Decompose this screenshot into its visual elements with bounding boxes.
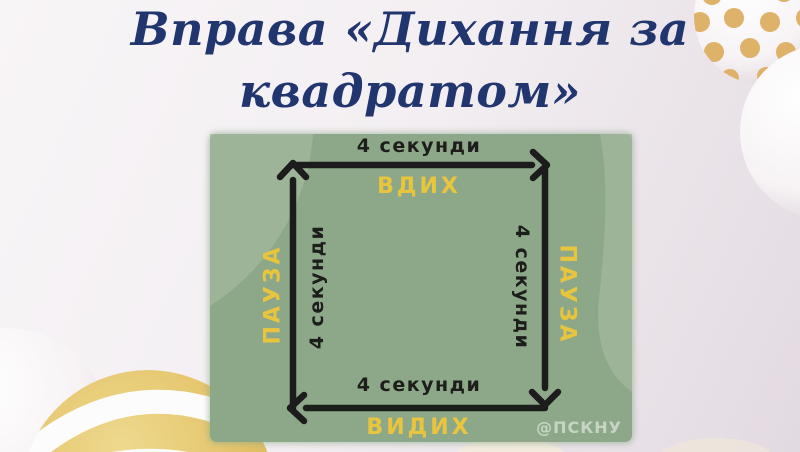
exhale-label: ВИДИХ <box>293 415 545 440</box>
slide: Вправа «Дихання за квадратом» <box>0 0 800 452</box>
watermark: @ПСКНУ <box>536 418 622 437</box>
pause-right-label: ПАУЗА <box>555 220 580 370</box>
pause-left-label: ПАУЗА <box>261 220 286 370</box>
breathing-square-panel: 4 секунди ВДИХ ПАУЗА 4 секунди 4 секунди… <box>210 134 632 442</box>
slide-title-line1: Вправа «Дихання за <box>100 0 720 60</box>
right-duration-label: 4 секунди <box>511 212 533 362</box>
slide-title: Вправа «Дихання за квадратом» <box>100 0 720 122</box>
panel-light-wave-right <box>598 134 632 392</box>
bottom-duration-label: 4 секунди <box>293 374 545 396</box>
slide-title-line2: квадратом» <box>100 60 720 122</box>
top-duration-label: 4 секунди <box>293 135 545 157</box>
left-duration-label: 4 секунди <box>306 212 328 362</box>
inhale-label: ВДИХ <box>293 174 545 199</box>
